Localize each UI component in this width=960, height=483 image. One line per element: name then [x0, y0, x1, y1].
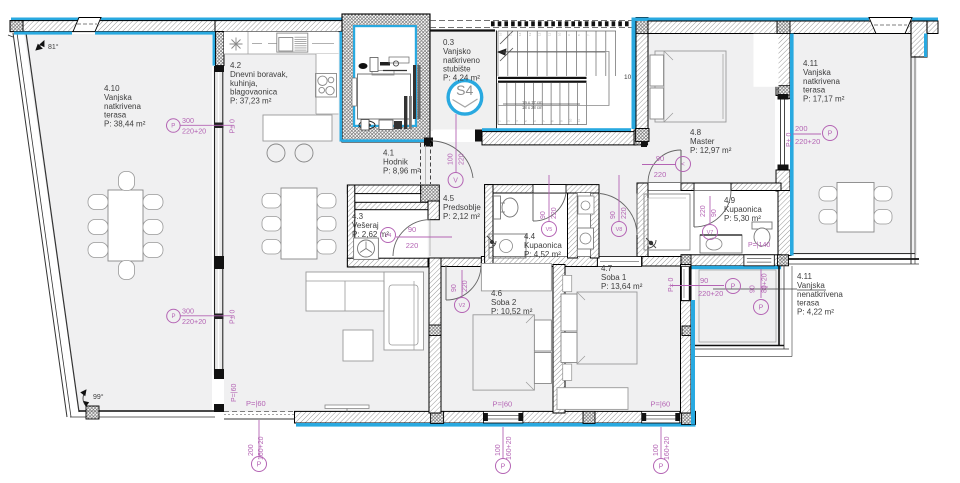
svg-text:V8: V8 [616, 227, 623, 233]
svg-text:220+20: 220+20 [795, 137, 820, 146]
svg-text:Vanjska: Vanjska [803, 68, 831, 77]
svg-text:P: P [171, 314, 175, 320]
svg-text:P± 0: P± 0 [230, 119, 237, 133]
svg-text:P: P [759, 305, 764, 312]
svg-text:300: 300 [182, 307, 194, 316]
svg-text:220+20: 220+20 [698, 289, 723, 298]
svg-text:90: 90 [750, 285, 757, 293]
svg-text:90: 90 [540, 211, 547, 219]
svg-text:P: 4,22 m²: P: 4,22 m² [797, 308, 834, 317]
svg-text:90: 90 [711, 209, 718, 217]
svg-text:P=|60: P=|60 [246, 399, 266, 408]
svg-text:Vanjsko: Vanjsko [443, 47, 471, 56]
svg-text:160+20: 160+20 [506, 436, 513, 460]
svg-text:160+20: 160+20 [664, 436, 671, 460]
svg-text:P: P [659, 464, 664, 471]
svg-text:V7: V7 [707, 230, 714, 236]
svg-text:P=|60: P=|60 [231, 384, 238, 402]
svg-text:terasa: terasa [803, 86, 826, 95]
svg-text:P=|140: P=|140 [748, 242, 770, 249]
svg-text:Soba 1: Soba 1 [601, 273, 627, 282]
svg-text:300: 300 [182, 116, 194, 125]
svg-text:natkriveno: natkriveno [443, 56, 480, 65]
svg-text:natkrivena: natkrivena [104, 102, 141, 111]
svg-text:90: 90 [656, 154, 664, 163]
svg-text:220+20: 220+20 [182, 317, 206, 326]
svg-text:P: 37,23 m²: P: 37,23 m² [230, 97, 272, 106]
svg-text:11: 11 [548, 33, 552, 36]
svg-text:P: 4,24 m²: P: 4,24 m² [443, 74, 480, 83]
svg-text:220: 220 [551, 207, 558, 219]
svg-text:terasa: terasa [797, 299, 820, 308]
svg-text:P: P [257, 462, 262, 469]
svg-text:P: 38,44 m²: P: 38,44 m² [104, 120, 146, 129]
svg-text:11: 11 [577, 119, 581, 122]
svg-text:V2: V2 [459, 303, 466, 309]
svg-text:220: 220 [406, 241, 419, 250]
svg-text:P± 0: P± 0 [786, 133, 793, 147]
svg-text:4.11: 4.11 [803, 59, 819, 68]
svg-text:Hodnik: Hodnik [383, 157, 409, 166]
svg-text:220+20: 220+20 [182, 127, 206, 136]
svg-text:4.9: 4.9 [724, 196, 736, 205]
svg-text:Dnevni boravak,: Dnevni boravak, [230, 70, 288, 79]
svg-text:V: V [453, 178, 458, 185]
svg-text:V4: V4 [385, 233, 392, 239]
svg-text:Master: Master [690, 137, 715, 146]
svg-text:P: 8,96 m²: P: 8,96 m² [383, 166, 420, 175]
svg-text:P± 0: P± 0 [230, 310, 237, 324]
svg-text:4.4: 4.4 [524, 232, 536, 241]
svg-text:blagovaonica: blagovaonica [230, 88, 278, 97]
svg-text:4.7: 4.7 [601, 264, 613, 273]
svg-text:100: 100 [448, 153, 455, 165]
svg-text:P: 4,52 m²: P: 4,52 m² [524, 250, 561, 259]
svg-text:13: 13 [528, 32, 532, 36]
svg-text:Predsoblje: Predsoblje [443, 203, 481, 212]
svg-text:P: P [731, 284, 736, 291]
svg-text:100: 100 [495, 444, 502, 456]
svg-text:4.6: 4.6 [491, 289, 503, 298]
svg-text:4.10: 4.10 [104, 84, 120, 93]
svg-text:4.11: 4.11 [797, 272, 813, 281]
svg-text:15: 15 [508, 32, 512, 36]
svg-text:P: 17,17 m²: P: 17,17 m² [803, 95, 845, 104]
svg-text:P± 0: P± 0 [668, 278, 675, 292]
svg-text:200: 200 [248, 444, 255, 456]
svg-text:4.1: 4.1 [383, 149, 395, 158]
svg-text:90: 90 [408, 225, 416, 234]
svg-text:10: 10 [624, 74, 632, 81]
svg-text:200: 200 [795, 124, 808, 133]
svg-text:90: 90 [610, 211, 617, 219]
svg-text:16: 16 [499, 32, 503, 36]
svg-text:S4: S4 [456, 82, 473, 98]
svg-text:natkrivena: natkrivena [803, 77, 840, 86]
svg-text:81°: 81° [48, 43, 59, 51]
svg-text:4.8: 4.8 [690, 128, 702, 137]
svg-text:90: 90 [700, 276, 708, 285]
svg-text:P: 10,52 m²: P: 10,52 m² [491, 307, 533, 316]
svg-text:Vanjska: Vanjska [797, 281, 825, 290]
svg-text:4.3: 4.3 [352, 212, 364, 221]
svg-text:P: 13,64 m²: P: 13,64 m² [601, 282, 643, 291]
svg-text:100: 100 [653, 444, 660, 456]
svg-text:0.3: 0.3 [443, 38, 455, 47]
svg-text:<: < [681, 162, 685, 168]
svg-text:P: P [828, 131, 833, 138]
svg-text:P: 5,30 m²: P: 5,30 m² [724, 214, 761, 223]
svg-text:P: P [171, 124, 175, 130]
svg-text:4.2: 4.2 [230, 61, 242, 70]
svg-text:220: 220 [459, 153, 466, 165]
svg-text:220: 220 [700, 205, 707, 217]
svg-text:220: 220 [654, 170, 667, 179]
svg-text:P: 2,12 m²: P: 2,12 m² [443, 212, 480, 221]
svg-text:P: P [501, 464, 506, 471]
svg-text:P=|60: P=|60 [493, 400, 513, 409]
svg-text:stubište: stubište [443, 65, 471, 74]
svg-text:Soba 2: Soba 2 [491, 298, 517, 307]
svg-text:Kupaonica: Kupaonica [724, 205, 762, 214]
svg-text:10: 10 [557, 32, 561, 36]
svg-text:90: 90 [451, 284, 458, 292]
svg-text:80+20: 80+20 [762, 273, 769, 293]
svg-text:terasa: terasa [104, 111, 127, 120]
svg-text:P: 12,97 m²: P: 12,97 m² [690, 146, 732, 155]
svg-text:kuhinja,: kuhinja, [230, 79, 258, 88]
svg-text:V5: V5 [546, 227, 553, 233]
svg-text:nenatkrivena: nenatkrivena [797, 290, 843, 299]
svg-text:Vanjska: Vanjska [104, 93, 132, 102]
svg-text:220: 220 [462, 280, 469, 292]
svg-text:10: 10 [568, 118, 572, 122]
svg-text:Kupaonica: Kupaonica [524, 241, 562, 250]
svg-text:18 x 28 cm: 18 x 28 cm [522, 105, 543, 110]
svg-text:12: 12 [538, 32, 542, 36]
svg-text:P=|60: P=|60 [651, 400, 671, 409]
svg-text:Vešeraj: Vešeraj [352, 221, 379, 230]
svg-text:4.5: 4.5 [443, 194, 455, 203]
svg-text:220: 220 [621, 207, 628, 219]
svg-text:14: 14 [518, 32, 522, 36]
svg-text:99°: 99° [93, 393, 104, 401]
